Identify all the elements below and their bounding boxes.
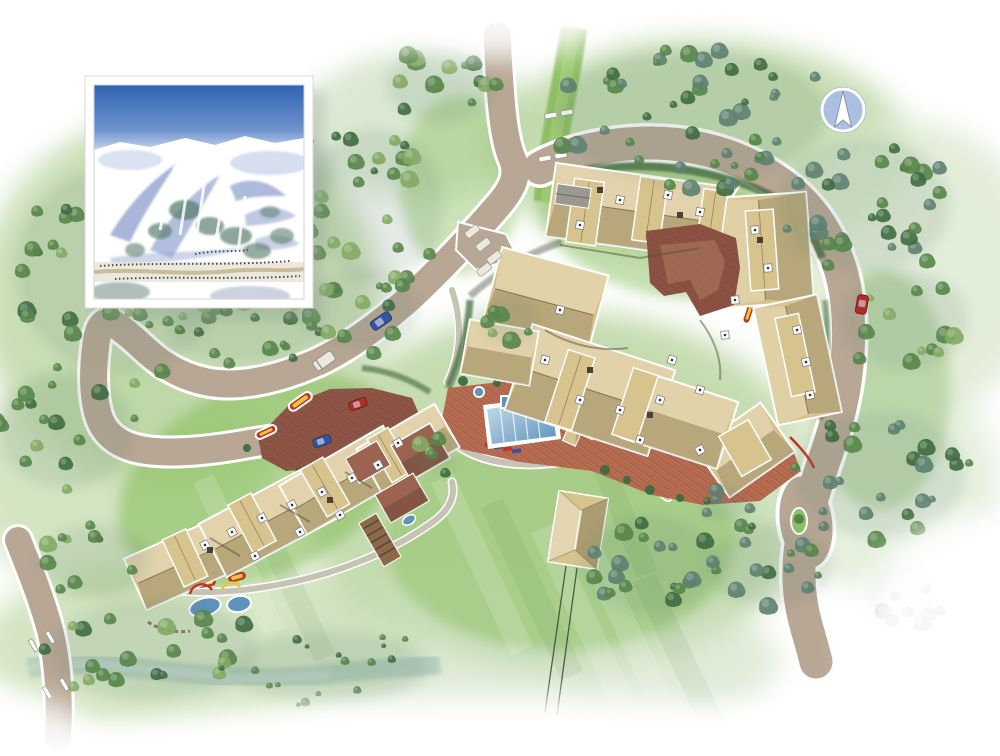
north-compass <box>821 88 866 133</box>
entry-structure <box>555 184 591 209</box>
site-plan-painting <box>0 0 1000 756</box>
inset-mountain-painting <box>85 76 325 320</box>
